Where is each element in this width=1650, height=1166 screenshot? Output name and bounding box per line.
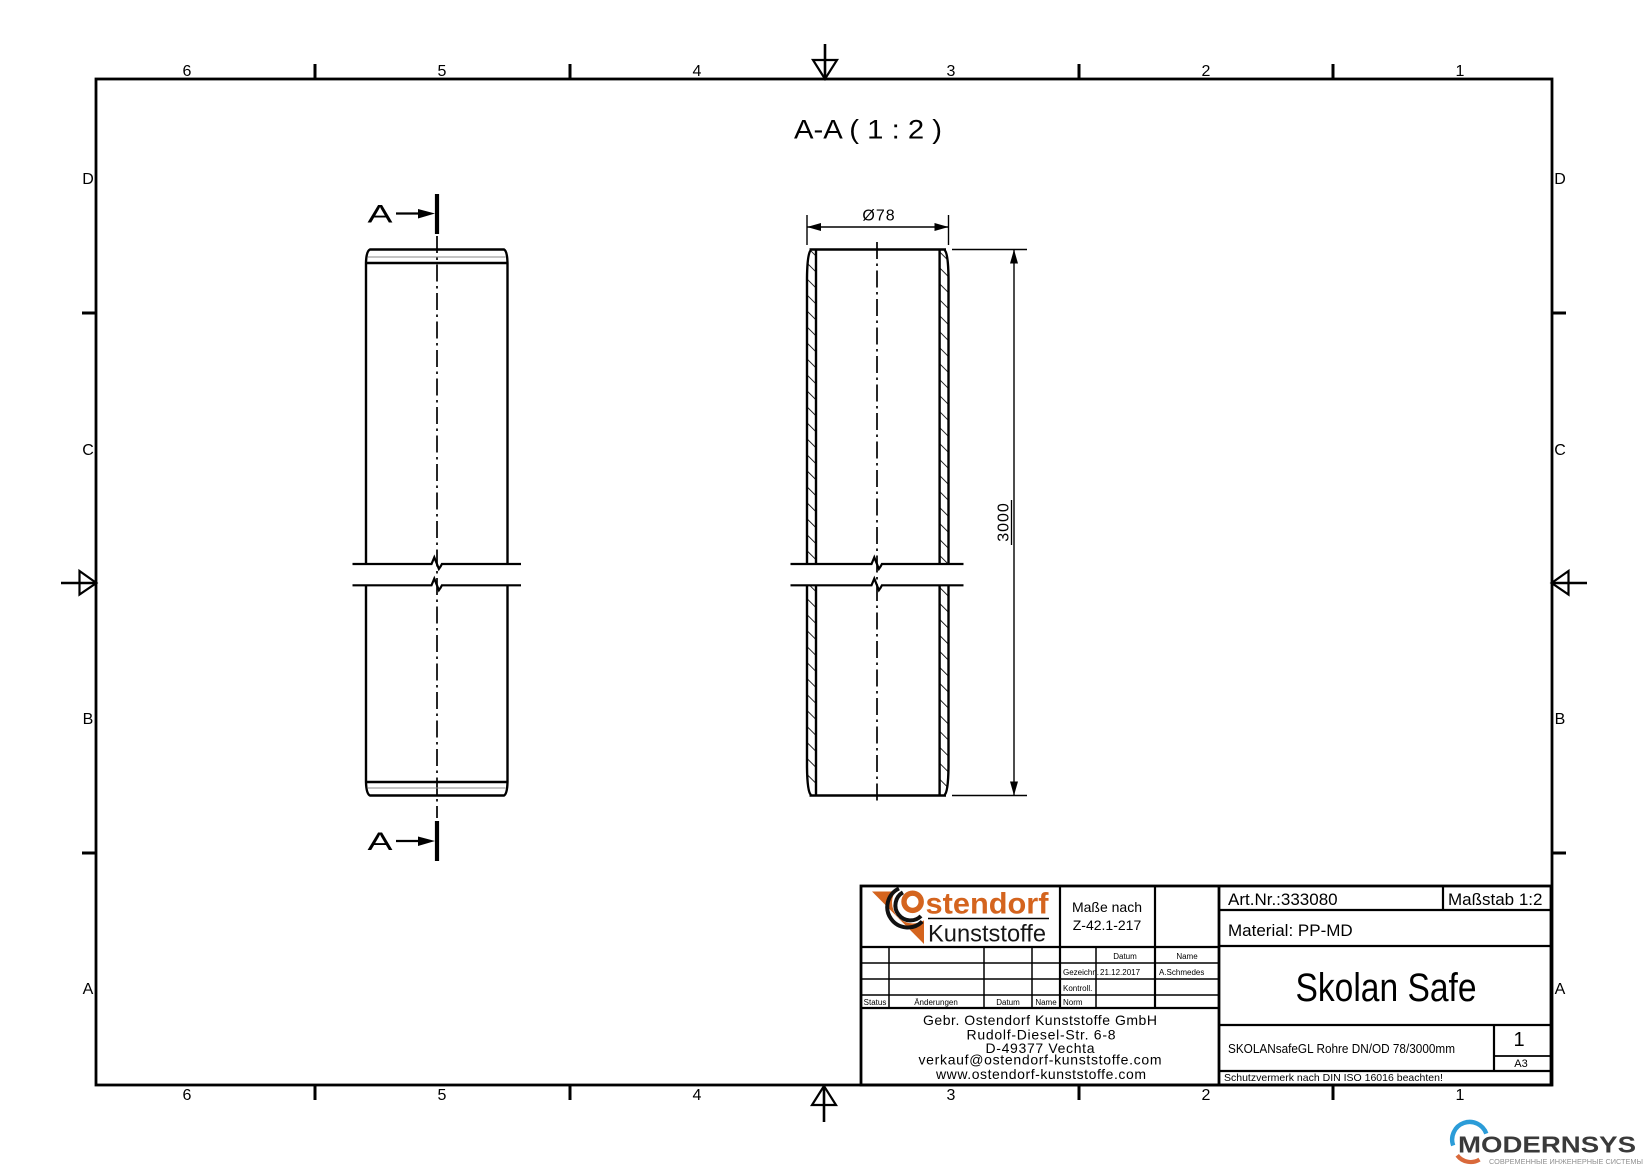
svg-text:Norm: Norm bbox=[1063, 998, 1083, 1007]
svg-text:Schutzvermerk nach DIN ISO 160: Schutzvermerk nach DIN ISO 16016 beachte… bbox=[1224, 1072, 1443, 1084]
svg-text:Kunststoffe: Kunststoffe bbox=[928, 921, 1046, 948]
svg-text:A: A bbox=[1555, 981, 1566, 998]
svg-text:Maßstab 1:2: Maßstab 1:2 bbox=[1448, 890, 1543, 909]
svg-text:D: D bbox=[1554, 171, 1566, 188]
svg-text:3000: 3000 bbox=[996, 502, 1013, 542]
svg-text:5: 5 bbox=[438, 63, 447, 80]
svg-text:1: 1 bbox=[1456, 1087, 1465, 1104]
svg-text:Material: PP-MD: Material: PP-MD bbox=[1228, 921, 1353, 940]
svg-text:A.Schmedes: A.Schmedes bbox=[1159, 968, 1204, 977]
svg-text:3: 3 bbox=[947, 1087, 956, 1104]
svg-text:A3: A3 bbox=[1514, 1058, 1527, 1070]
svg-text:MODERNSYS: MODERNSYS bbox=[1458, 1132, 1636, 1158]
svg-text:stendorf: stendorf bbox=[926, 888, 1050, 921]
svg-text:Skolan Safe: Skolan Safe bbox=[1296, 966, 1477, 1010]
svg-text:SKOLANsafeGL Rohre DN/OD 78/30: SKOLANsafeGL Rohre DN/OD 78/3000mm bbox=[1228, 1041, 1455, 1056]
svg-text:3: 3 bbox=[947, 63, 956, 80]
svg-text:5: 5 bbox=[438, 1087, 447, 1104]
svg-text:www.ostendorf-kunststoffe.com: www.ostendorf-kunststoffe.com bbox=[935, 1066, 1146, 1082]
svg-text:A: A bbox=[367, 200, 393, 228]
svg-text:Art.Nr.:333080: Art.Nr.:333080 bbox=[1228, 890, 1338, 909]
svg-text:СОВРЕМЕННЫЕ ИНЖЕНЕРНЫЕ СИСТЕМЫ: СОВРЕМЕННЫЕ ИНЖЕНЕРНЫЕ СИСТЕМЫ bbox=[1489, 1157, 1643, 1166]
svg-text:A: A bbox=[83, 981, 94, 998]
svg-text:1: 1 bbox=[1456, 63, 1465, 80]
svg-text:A: A bbox=[367, 827, 393, 855]
svg-text:Gezeichn.: Gezeichn. bbox=[1063, 968, 1099, 977]
svg-text:A-A ( 1 : 2 ): A-A ( 1 : 2 ) bbox=[794, 115, 942, 145]
svg-text:6: 6 bbox=[183, 1087, 192, 1104]
svg-text:6: 6 bbox=[183, 63, 192, 80]
svg-text:Datum: Datum bbox=[996, 998, 1020, 1007]
svg-text:4: 4 bbox=[693, 63, 702, 80]
svg-text:B: B bbox=[83, 711, 94, 728]
svg-text:Status: Status bbox=[864, 998, 887, 1007]
svg-text:D: D bbox=[82, 171, 94, 188]
svg-text:Kontroll.: Kontroll. bbox=[1063, 984, 1092, 993]
svg-text:B: B bbox=[1555, 711, 1566, 728]
svg-text:2: 2 bbox=[1202, 63, 1211, 80]
svg-text:C: C bbox=[1554, 442, 1566, 459]
svg-text:21.12.2017: 21.12.2017 bbox=[1100, 968, 1141, 977]
svg-text:Ø78: Ø78 bbox=[862, 208, 895, 225]
svg-text:Maße nach: Maße nach bbox=[1072, 899, 1142, 915]
svg-text:2: 2 bbox=[1202, 1087, 1211, 1104]
svg-text:Änderungen: Änderungen bbox=[914, 998, 958, 1007]
svg-text:Name: Name bbox=[1176, 952, 1198, 961]
svg-text:Datum: Datum bbox=[1113, 952, 1137, 961]
svg-text:Name: Name bbox=[1035, 998, 1057, 1007]
svg-text:Z-42.1-217: Z-42.1-217 bbox=[1073, 917, 1142, 933]
svg-text:4: 4 bbox=[693, 1087, 702, 1104]
svg-text:1: 1 bbox=[1513, 1029, 1524, 1051]
svg-text:C: C bbox=[82, 442, 94, 459]
